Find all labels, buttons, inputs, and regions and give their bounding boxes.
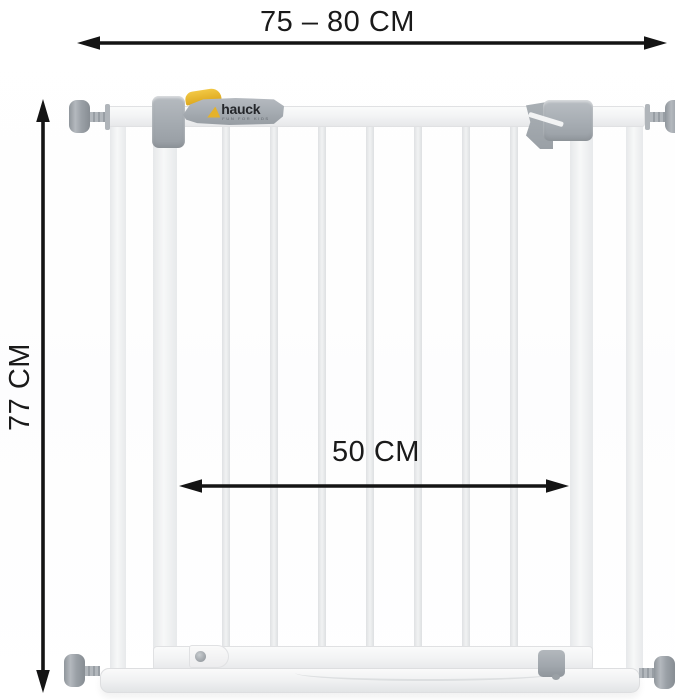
dimension-label-inner-width: 50 CM <box>316 436 436 469</box>
spindle-knob <box>69 100 90 133</box>
dimension-label-height: 77 CM <box>0 317 40 457</box>
pressure-spindle-top-right <box>645 100 675 133</box>
brand-name: hauck <box>221 102 269 116</box>
pressure-spindle-bottom-right <box>639 656 675 689</box>
spindle-shaft <box>85 666 100 676</box>
gate-bar <box>414 126 422 652</box>
brand-tagline: fun for kids <box>222 117 269 121</box>
threshold-shadow-curve <box>295 664 560 681</box>
bottom-pivot <box>189 645 229 668</box>
bottom-catch <box>538 650 565 677</box>
door-post-left <box>153 124 177 670</box>
gate-bar <box>222 126 230 652</box>
gate-bar <box>510 126 518 652</box>
catch-screw <box>552 674 560 680</box>
dimension-label-width-range: 75 – 80 CM <box>0 6 675 39</box>
brand-text: hauck fun for kids <box>221 102 269 121</box>
door-handle: hauck fun for kids <box>183 98 284 125</box>
pivot-screw <box>195 651 206 662</box>
door-post-right <box>570 124 593 670</box>
spindle-flange <box>105 104 110 130</box>
safety-gate: hauck fun for kids <box>0 0 675 700</box>
gate-bar <box>462 126 470 652</box>
spindle-knob <box>654 656 675 689</box>
wall-post-right <box>626 124 643 672</box>
logo-triangle-icon <box>207 107 220 118</box>
gate-bar <box>270 126 278 652</box>
wall-post-left <box>110 124 126 672</box>
brand-logo: hauck fun for kids <box>207 102 269 121</box>
hinge-bracket-top-left <box>152 96 185 148</box>
spindle-shaft <box>650 112 665 122</box>
spindle-shaft <box>639 668 654 678</box>
gate-bar <box>318 126 326 652</box>
pressure-spindle-top-left <box>69 100 110 133</box>
spindle-shaft <box>90 112 105 122</box>
spindle-knob <box>665 100 675 133</box>
spindle-knob <box>64 654 85 687</box>
pressure-spindle-bottom-left <box>64 654 100 687</box>
gate-bar <box>366 126 374 652</box>
product-diagram: 75 – 80 CM 77 CM 50 CM <box>0 0 675 700</box>
